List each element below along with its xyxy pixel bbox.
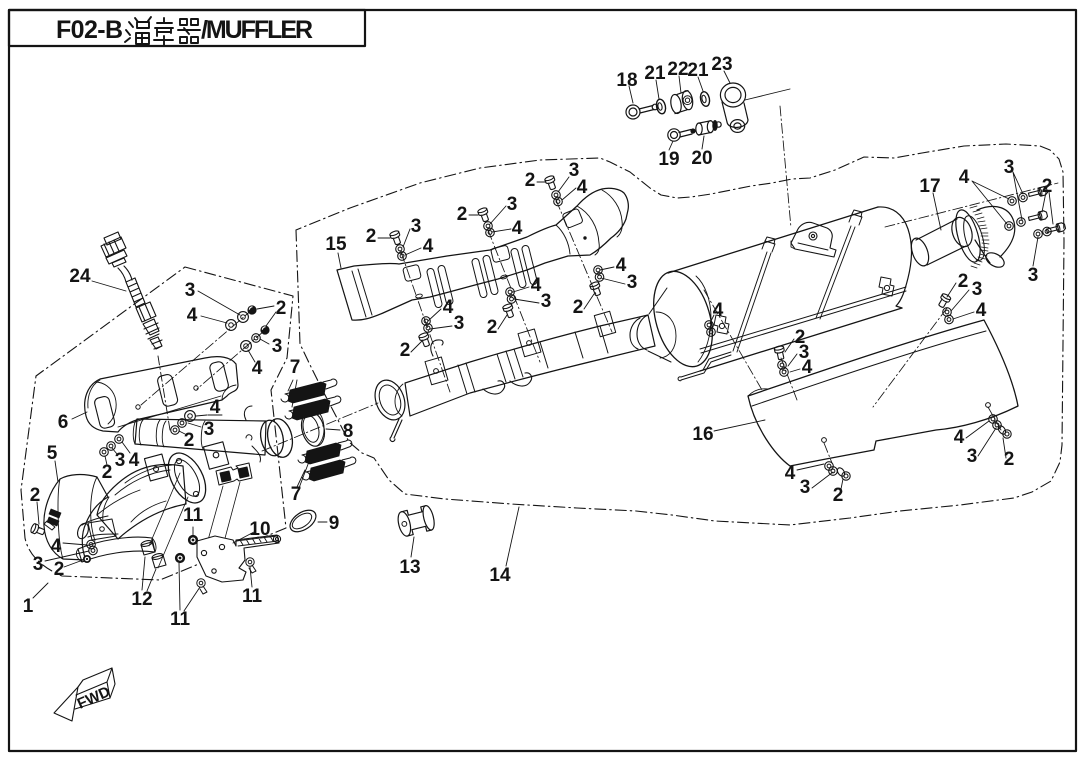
- svg-text:2: 2: [573, 297, 584, 318]
- svg-text:7: 7: [290, 357, 301, 378]
- svg-text:17: 17: [919, 176, 940, 197]
- svg-text:2: 2: [525, 170, 536, 191]
- svg-text:4: 4: [512, 218, 523, 239]
- svg-text:4: 4: [802, 357, 813, 378]
- svg-text:3: 3: [115, 450, 126, 471]
- svg-text:22: 22: [667, 59, 688, 80]
- svg-text:13: 13: [399, 557, 420, 578]
- svg-text:2: 2: [457, 204, 468, 225]
- svg-text:3: 3: [454, 313, 465, 334]
- svg-text:2: 2: [487, 317, 498, 338]
- svg-text:4: 4: [187, 305, 198, 326]
- svg-text:20: 20: [691, 148, 712, 169]
- svg-text:8: 8: [343, 421, 354, 442]
- svg-text:4: 4: [210, 397, 221, 418]
- svg-text:19: 19: [658, 149, 679, 170]
- svg-text:2: 2: [833, 485, 844, 506]
- svg-text:3: 3: [185, 280, 196, 301]
- svg-text:3: 3: [272, 336, 283, 357]
- svg-text:7: 7: [291, 484, 302, 505]
- svg-text:2: 2: [30, 485, 41, 506]
- svg-text:3: 3: [800, 477, 811, 498]
- svg-text:FWD: FWD: [75, 683, 113, 712]
- svg-text:2: 2: [366, 226, 377, 247]
- svg-text:24: 24: [69, 266, 91, 287]
- svg-text:4: 4: [954, 427, 965, 448]
- svg-text:11: 11: [183, 505, 204, 526]
- svg-text:4: 4: [616, 255, 627, 276]
- svg-text:3: 3: [967, 446, 978, 467]
- svg-text:5: 5: [47, 443, 58, 464]
- svg-text:2: 2: [102, 462, 113, 483]
- svg-text:2: 2: [1004, 449, 1015, 470]
- svg-text:3: 3: [33, 554, 44, 575]
- svg-text:2: 2: [1042, 176, 1053, 197]
- svg-text:4: 4: [959, 167, 970, 188]
- svg-text:4: 4: [129, 450, 140, 471]
- svg-text:4: 4: [531, 275, 542, 296]
- svg-text:3: 3: [204, 419, 215, 440]
- svg-text:F02-B: F02-B: [56, 16, 123, 44]
- svg-text:4: 4: [443, 297, 454, 318]
- svg-text:4: 4: [252, 358, 263, 379]
- svg-text:3: 3: [411, 216, 422, 237]
- svg-text:6: 6: [58, 412, 69, 433]
- svg-text:21: 21: [644, 63, 666, 84]
- svg-text:9: 9: [329, 513, 340, 534]
- svg-text:3: 3: [507, 194, 518, 215]
- svg-text:2: 2: [400, 340, 411, 361]
- svg-text:3: 3: [1004, 157, 1015, 178]
- svg-text:2: 2: [54, 559, 65, 580]
- svg-text:18: 18: [616, 70, 637, 91]
- svg-text:4: 4: [976, 300, 987, 321]
- svg-text:11: 11: [170, 609, 191, 630]
- svg-text:1: 1: [23, 596, 34, 617]
- svg-text:12: 12: [131, 589, 152, 610]
- svg-text:3: 3: [541, 291, 552, 312]
- svg-text:2: 2: [958, 271, 969, 292]
- svg-text:2: 2: [276, 298, 287, 319]
- svg-text:16: 16: [692, 424, 713, 445]
- svg-text:14: 14: [489, 565, 511, 586]
- svg-text:4: 4: [577, 177, 588, 198]
- svg-text:3: 3: [627, 272, 638, 293]
- svg-text:4: 4: [713, 300, 724, 321]
- svg-text:3: 3: [1028, 265, 1039, 286]
- svg-text:11: 11: [242, 586, 263, 607]
- svg-text:4: 4: [785, 463, 796, 484]
- svg-text:15: 15: [325, 234, 347, 255]
- svg-text:3: 3: [972, 279, 983, 300]
- svg-text:2: 2: [184, 430, 195, 451]
- svg-text:4: 4: [51, 536, 62, 557]
- svg-text:10: 10: [249, 519, 270, 540]
- svg-text:/MUFFLER: /MUFFLER: [201, 16, 313, 44]
- svg-text:21: 21: [687, 60, 709, 81]
- svg-text:23: 23: [711, 54, 732, 75]
- svg-text:4: 4: [423, 236, 434, 257]
